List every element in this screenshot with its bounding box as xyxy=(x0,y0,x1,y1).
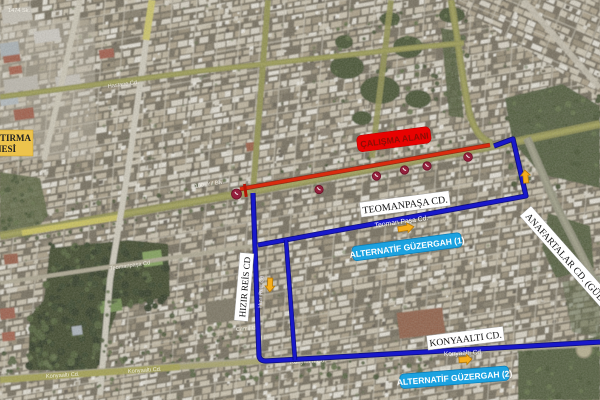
svg-text:1474 Sk.: 1474 Sk. xyxy=(8,8,31,14)
svg-text:ARAŞTIRMA: ARAŞTIRMA xyxy=(0,133,31,143)
svg-text:HASTANESİ: HASTANESİ xyxy=(0,144,16,154)
